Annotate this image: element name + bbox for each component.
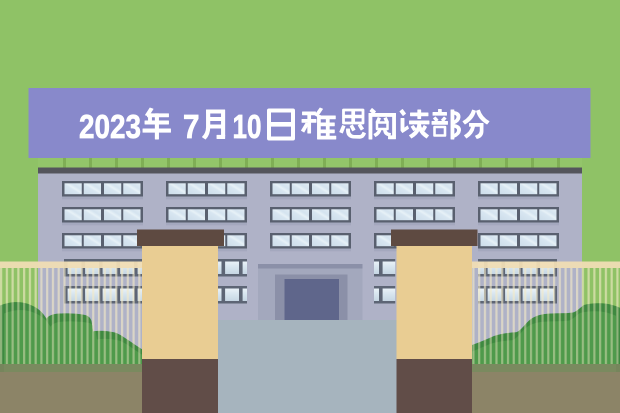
svg-text:10: 10 [233, 108, 262, 145]
svg-text:7: 7 [183, 108, 200, 145]
svg-text:2023: 2023 [79, 108, 141, 145]
